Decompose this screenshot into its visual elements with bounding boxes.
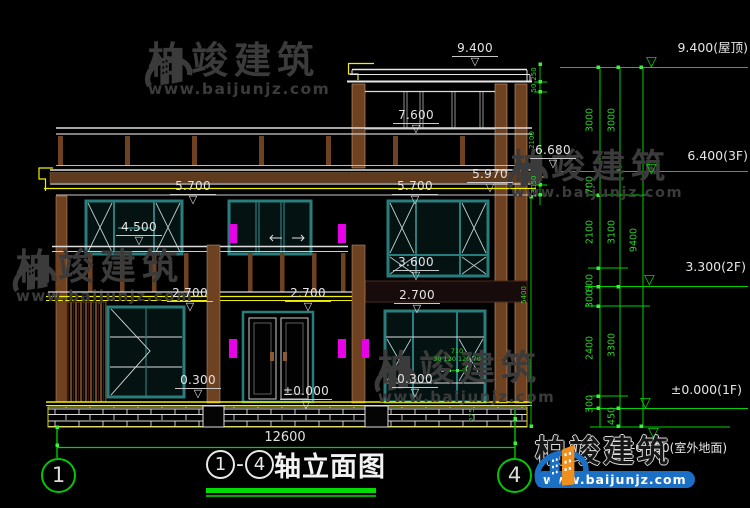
elevation-dim: 2.700▽ <box>285 287 331 311</box>
title-underline-thin <box>206 495 376 497</box>
elevation-dim: 4.500▽ <box>116 221 162 245</box>
title-dash: - <box>236 452 244 477</box>
triangle-marker-icon: ▽ <box>393 271 439 280</box>
elevation-dim: 5.700▽ <box>392 180 438 204</box>
chain-dim: 3000 <box>607 108 618 132</box>
cad-elevation-screenshot: 柏竣建筑 www.baijunjz.com 柏竣建筑 www.baijunjz.… <box>0 0 750 508</box>
story-elevation-marker: 3.300(2F)▽ <box>628 259 746 286</box>
triangle-marker-icon: ▽ <box>644 274 655 286</box>
chain-dim: 300 <box>585 290 596 308</box>
dimension-annotations: 9.400▽7.600▽6.680▽5.970▽5.700▽5.700▽4.50… <box>0 0 750 508</box>
chain-dim: 300 <box>585 395 596 413</box>
triangle-marker-icon: ▽ <box>392 195 438 204</box>
chain-dim: 700 <box>585 176 596 194</box>
elevation-dim: 2.700▽ <box>167 287 213 311</box>
elevation-dim: 5.970▽ <box>467 168 513 192</box>
story-elevation-marker: 6.400(3F)▽ <box>630 148 748 175</box>
triangle-marker-icon: ▽ <box>170 195 216 204</box>
micro-dim: 50 <box>530 84 538 93</box>
triangle-marker-icon: ▽ <box>530 159 576 168</box>
micro-dim: 710 <box>451 347 463 355</box>
title-axis-to: 4 <box>245 450 274 479</box>
story-elevation-marker: ±0.000(1F)▽ <box>624 382 742 409</box>
micro-dim: 50 <box>530 176 538 185</box>
chain-dim: 2400 <box>585 336 596 360</box>
title-underline-thick <box>206 488 376 493</box>
micro-dim: 275 <box>468 408 476 421</box>
triangle-marker-icon: ▽ <box>452 57 498 66</box>
triangle-marker-icon: ▽ <box>175 389 221 398</box>
chain-dim: 450 <box>607 407 618 425</box>
elevation-dim: 2.700▽ <box>394 289 440 313</box>
footer-logo: 柏竣建筑 www.baijunjz.com <box>531 436 695 488</box>
chain-dim: 3000 <box>585 108 596 132</box>
triangle-marker-icon: ▽ <box>467 183 513 192</box>
title-axis-from: 1 <box>206 450 235 479</box>
axis-bubble-4: 4 <box>497 458 532 493</box>
micro-dim: 2100 <box>528 131 536 149</box>
elevation-dim: ±0.000▽ <box>280 385 332 409</box>
elevation-dim: 6.680▽ <box>530 144 576 168</box>
triangle-marker-icon: ▽ <box>116 236 162 245</box>
triangle-marker-icon: ▽ <box>392 388 438 397</box>
total-width-dim: 12600 <box>253 430 317 445</box>
title-text: 轴立面图 <box>274 452 386 483</box>
story-elevation-marker: 9.400(屋顶)▽ <box>630 37 748 68</box>
triangle-marker-icon: ▽ <box>394 304 440 313</box>
micro-dim: 250 <box>530 67 538 80</box>
baijun-logo-icon <box>531 436 593 498</box>
axis-bubble-1: 1 <box>41 458 76 493</box>
elevation-dim: 0.300▽ <box>175 374 221 398</box>
micro-dim: 5400 <box>520 286 528 304</box>
elevation-dim: 9.400▽ <box>452 42 498 66</box>
chain-dim: 3300 <box>607 333 618 357</box>
micro-dim: 130 <box>530 184 538 197</box>
chain-dim: 2100 <box>585 220 596 244</box>
triangle-marker-icon: ▽ <box>280 400 332 409</box>
triangle-marker-icon: ▽ <box>285 302 331 311</box>
micro-dim: 30 120 120 70 <box>433 355 481 363</box>
triangle-marker-icon: ▽ <box>393 124 439 133</box>
chain-dim: 9400 <box>629 228 640 252</box>
triangle-marker-icon: ▽ <box>640 397 651 409</box>
triangle-marker-icon: ▽ <box>167 302 213 311</box>
chain-dim: 3100 <box>607 220 618 244</box>
elevation-dim: 0.300▽ <box>392 373 438 397</box>
elevation-dim: 3.600▽ <box>393 256 439 280</box>
triangle-marker-icon: ▽ <box>646 56 657 68</box>
elevation-dim: 7.600▽ <box>393 109 439 133</box>
triangle-marker-icon: ▽ <box>646 163 657 175</box>
elevation-dim: 5.700▽ <box>170 180 216 204</box>
drawing-title: 1-4轴立面图 <box>206 445 386 497</box>
